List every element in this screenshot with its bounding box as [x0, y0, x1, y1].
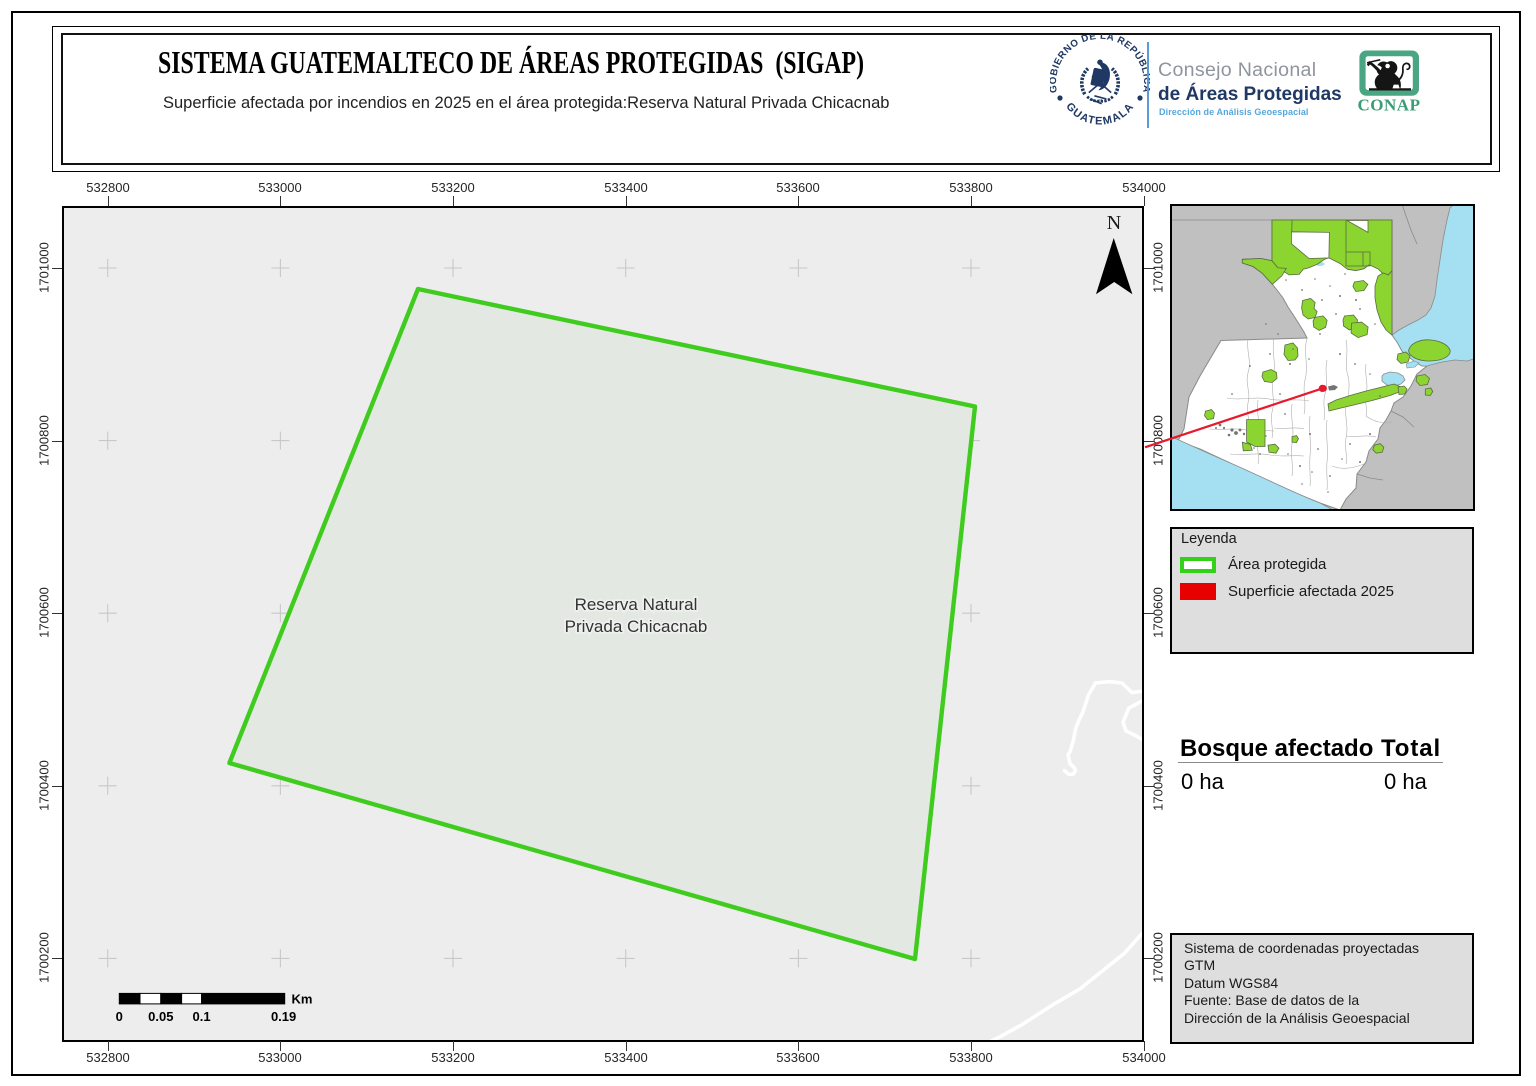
- svg-text:Km: Km: [292, 992, 313, 1007]
- svg-text:0.1: 0.1: [193, 1009, 211, 1024]
- svg-text:GUATEMALA: GUATEMALA: [1063, 101, 1136, 128]
- svg-text:N: N: [1107, 212, 1121, 234]
- svg-text:0: 0: [116, 1009, 123, 1024]
- svg-text:Privada Chicacnab: Privada Chicacnab: [565, 617, 708, 636]
- svg-text:CONAP: CONAP: [1358, 96, 1421, 115]
- svg-text:0.05: 0.05: [148, 1009, 173, 1024]
- svg-text:0.19: 0.19: [271, 1009, 296, 1024]
- svg-text:Reserva Natural: Reserva Natural: [575, 595, 698, 614]
